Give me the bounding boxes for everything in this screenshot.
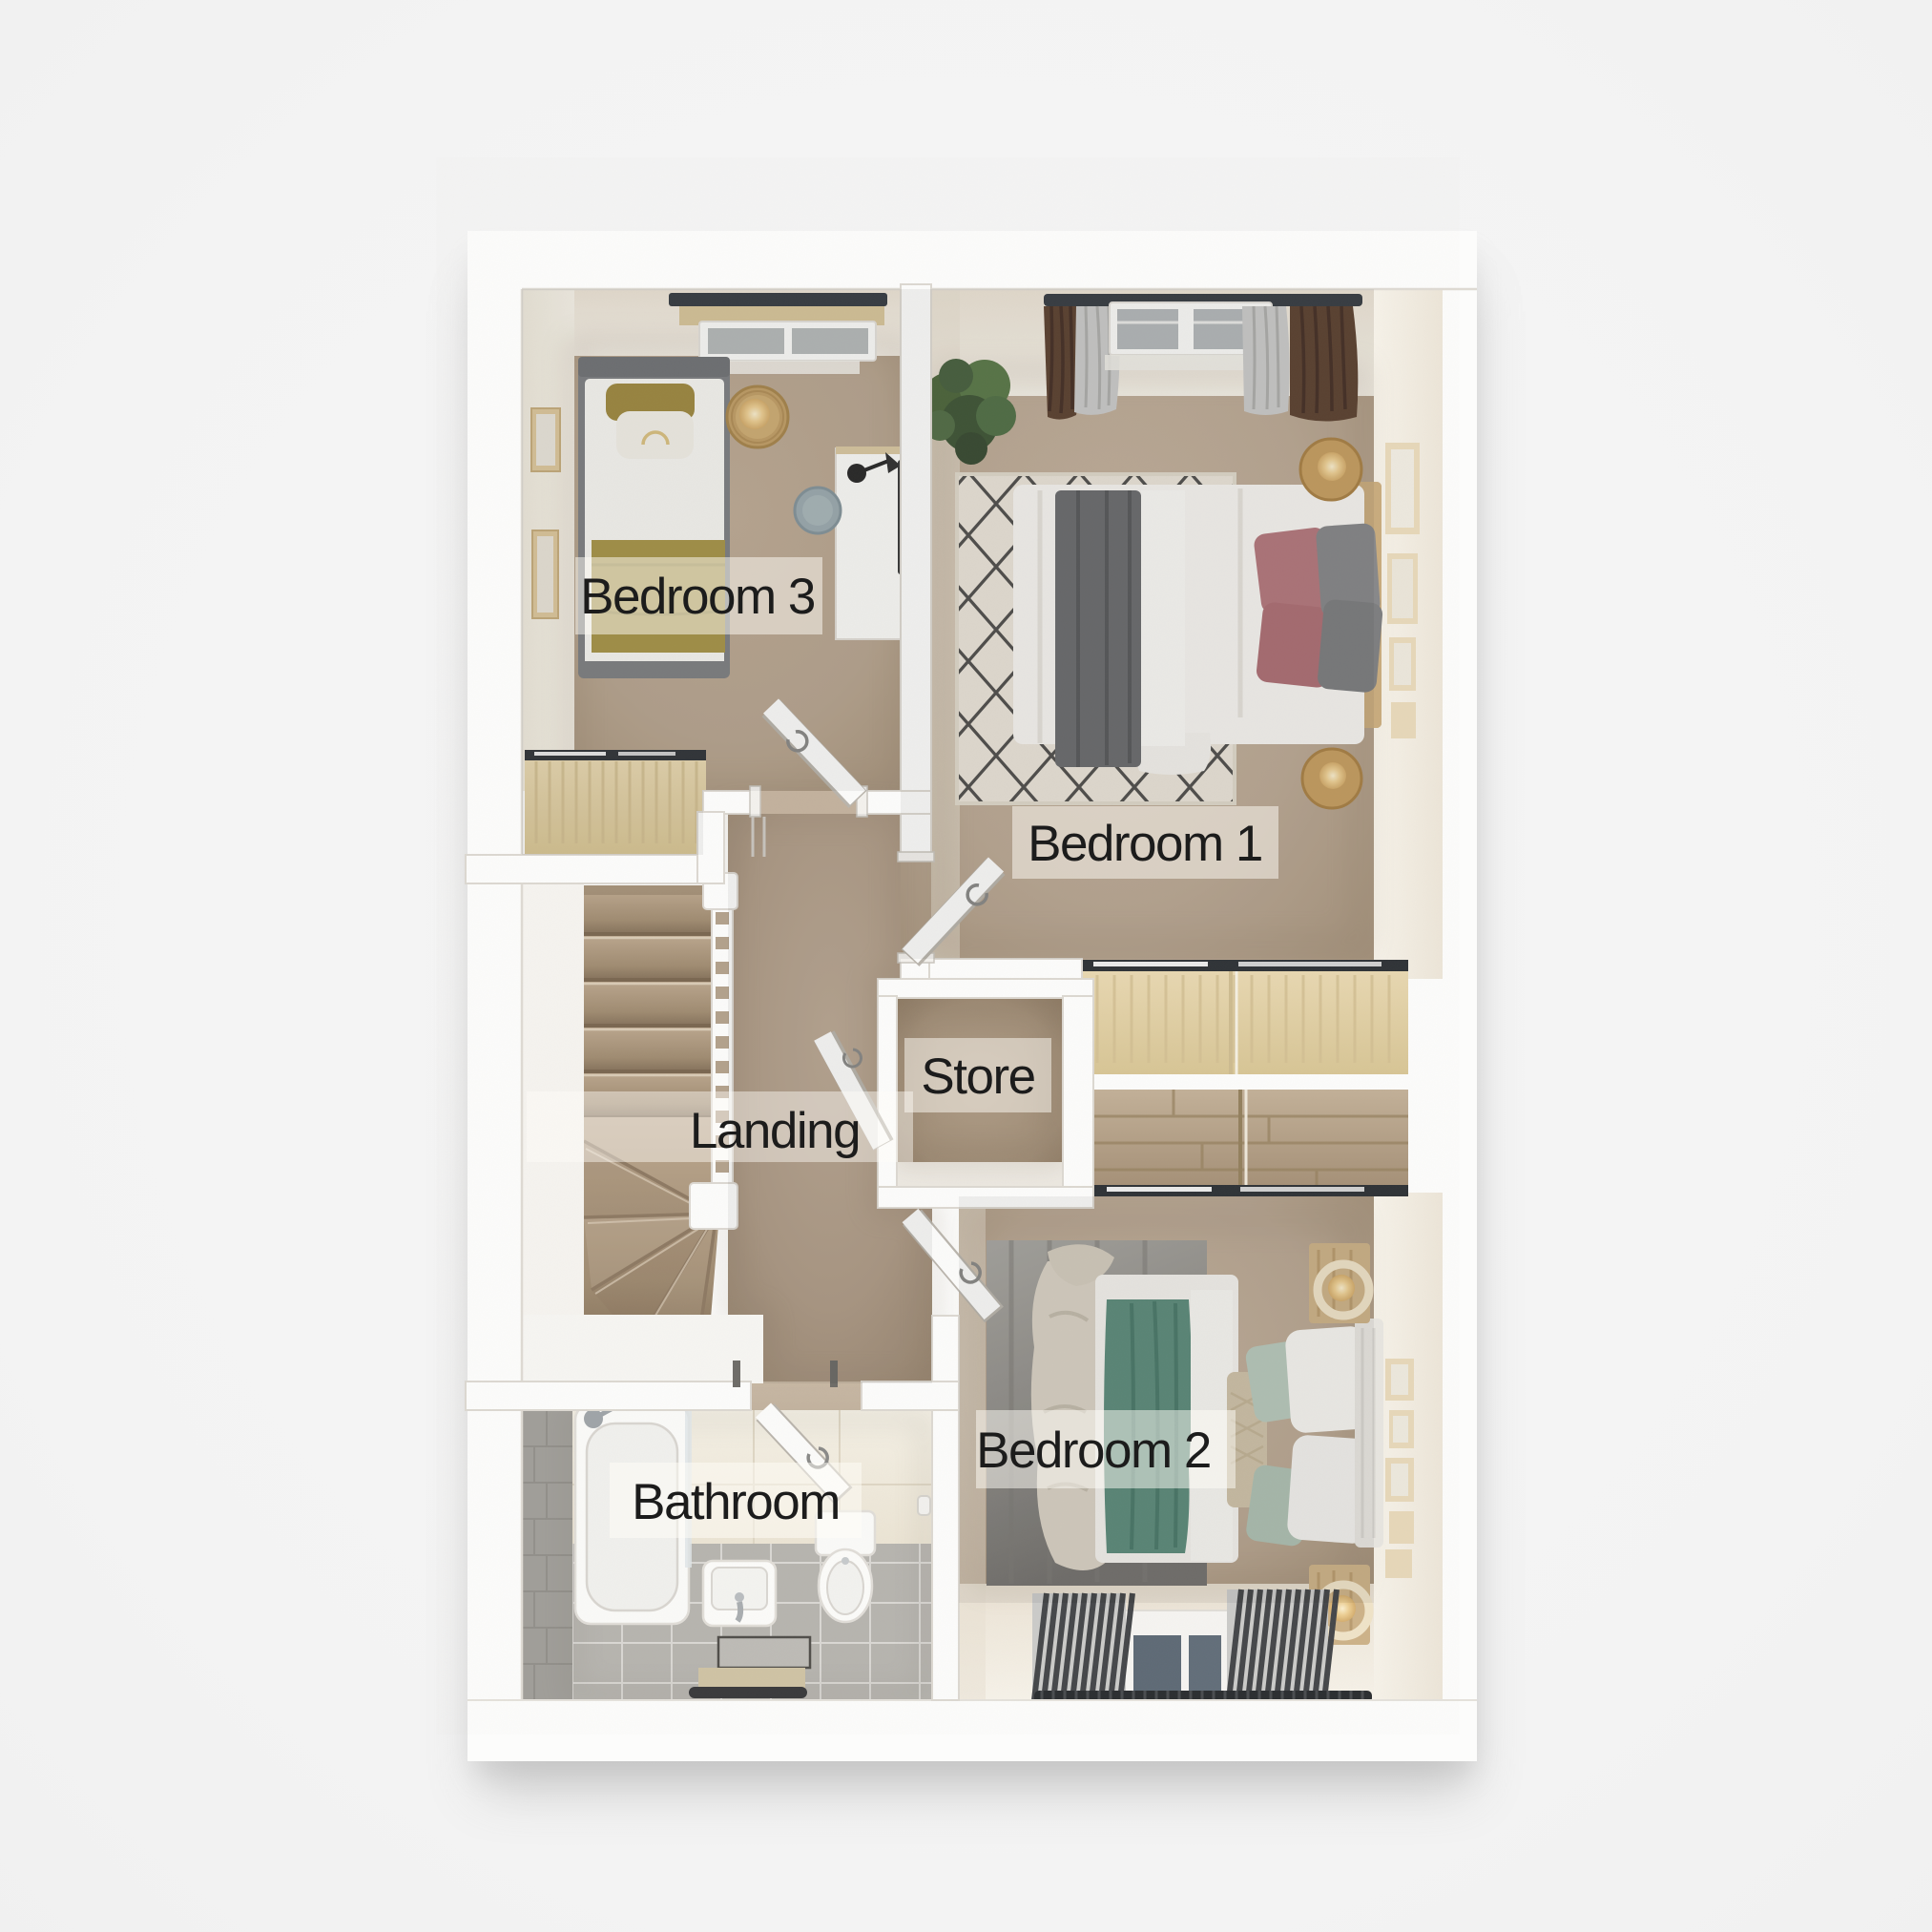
svg-text:Bedroom 2: Bedroom 2 xyxy=(976,1423,1211,1479)
svg-text:Store: Store xyxy=(921,1049,1034,1105)
svg-text:Bathroom: Bathroom xyxy=(632,1474,840,1530)
svg-text:Landing: Landing xyxy=(690,1103,860,1159)
svg-text:Bedroom 1: Bedroom 1 xyxy=(1028,816,1262,872)
svg-text:Bedroom 3: Bedroom 3 xyxy=(580,569,815,625)
